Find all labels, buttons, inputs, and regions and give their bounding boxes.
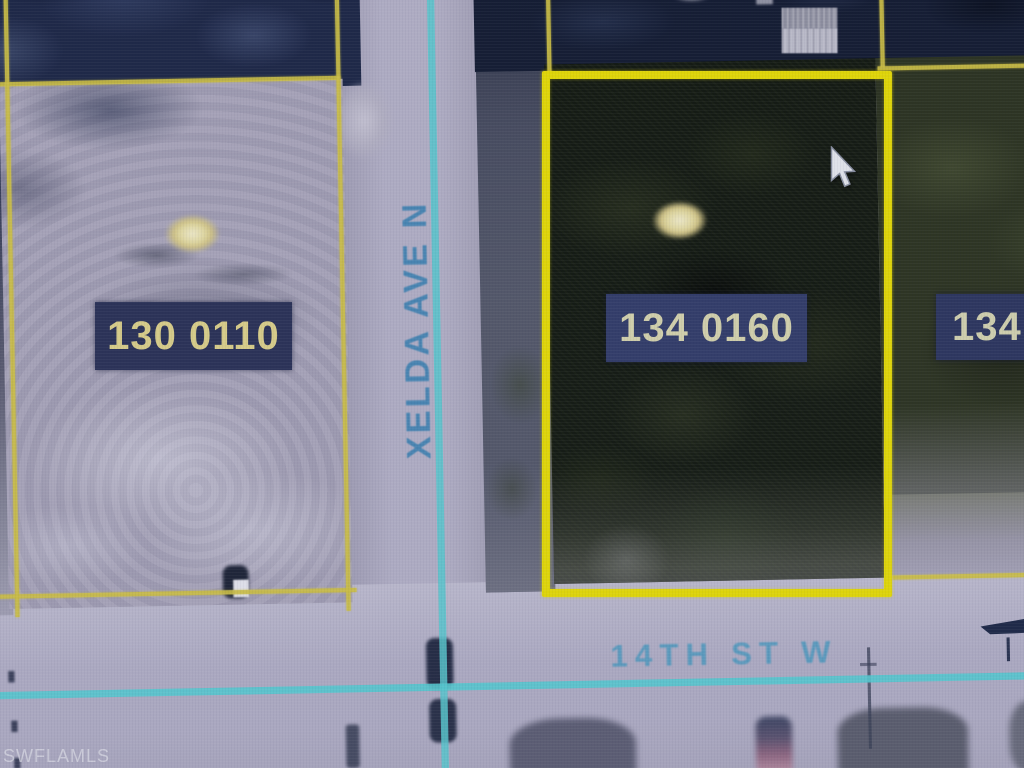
- cursor-icon: [828, 146, 858, 192]
- parcel-label-130-0110: 130 0110: [95, 302, 292, 370]
- vehicle-bottom-1: [509, 717, 636, 768]
- street-name-14th: 14TH ST W: [610, 635, 859, 675]
- street-name-xelda: XELDA AVE N: [395, 195, 439, 465]
- roadside-object: [346, 724, 360, 768]
- vehicle-maroon-car: [755, 716, 792, 768]
- parcel-label-134-partial: 134: [936, 294, 1024, 360]
- terrain-neighbor-lot: [875, 53, 1024, 503]
- building-roof-lower: [782, 28, 838, 53]
- mls-aerial-parcel-map[interactable]: XELDA AVE N 14TH ST W 130 0110 134 0160 …: [0, 0, 1024, 768]
- roadside-post: [11, 721, 17, 733]
- vehicle-roof-highlight: [233, 580, 249, 598]
- trailer-leg: [1007, 637, 1011, 661]
- roadside-post: [8, 671, 14, 683]
- vehicle-bottom-2: [837, 707, 969, 768]
- parcel-label-134-0160: 134 0160: [606, 294, 807, 362]
- utility-pole-arm: [860, 663, 877, 666]
- mls-watermark: SWFLAMLS: [3, 746, 110, 767]
- terrain-neighbor-ground: [884, 490, 1024, 575]
- building-roof-upper: [782, 8, 838, 29]
- building-structure: [782, 8, 838, 54]
- small-structure: [756, 0, 773, 5]
